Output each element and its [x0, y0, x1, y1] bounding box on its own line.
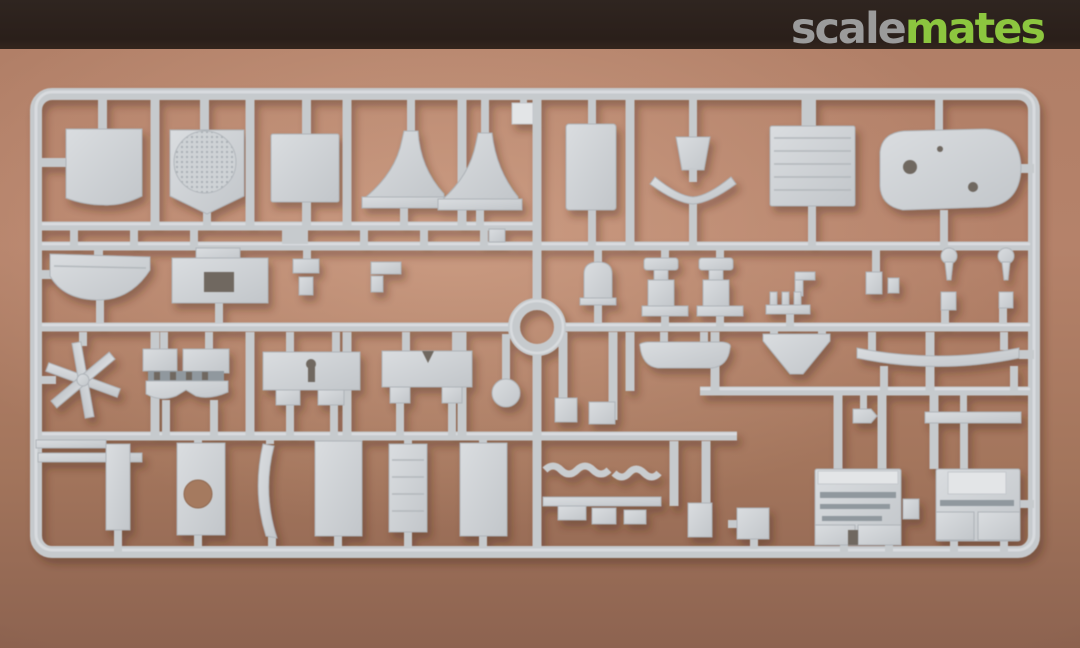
part-louvered-panel	[389, 444, 427, 532]
sprue	[36, 92, 1034, 552]
part-plate-with-hole	[177, 443, 225, 535]
part-tall-panel	[566, 124, 616, 210]
part-winch-pedestal-2	[697, 258, 743, 316]
photo-stage: scalemates	[0, 0, 1080, 648]
part-curved-panel	[66, 129, 142, 205]
part-hatched-grille	[770, 126, 855, 206]
logo-scale-text: scale	[791, 4, 905, 54]
part-small-tag	[512, 103, 533, 124]
part-plank	[106, 444, 130, 530]
part-large-panel-2	[460, 443, 507, 536]
part-funnel-stack-left	[362, 131, 448, 208]
part-curved-blade	[857, 348, 1019, 367]
part-round-pin-1	[941, 248, 957, 280]
part-deck-house	[172, 248, 268, 303]
part-funnel-stack-right	[438, 133, 522, 210]
sprue-center-ring	[511, 301, 563, 353]
part-boat-hull-half	[880, 129, 1021, 210]
part-large-panel-1	[315, 441, 362, 536]
part-curved-rib	[258, 444, 277, 538]
part-round-disc	[492, 379, 520, 407]
part-square-panel	[271, 134, 339, 202]
part-superstructure-1	[815, 469, 901, 545]
part-winch-pedestal-1	[642, 258, 688, 316]
part-small-fittings	[866, 272, 1013, 310]
part-small-funnel-bracket	[650, 137, 736, 204]
part-round-pin-2	[998, 248, 1014, 280]
part-mesh-hatch-plate	[170, 130, 244, 214]
part-small-blocks-center	[555, 398, 615, 424]
part-notched-bulkhead	[382, 351, 472, 403]
scalemates-watermark: scalemates	[791, 8, 1044, 51]
sprue-photo	[0, 0, 1080, 648]
part-bridge-wing	[143, 349, 229, 399]
part-boat-strip	[640, 342, 731, 368]
part-superstructure-2	[936, 469, 1020, 541]
part-chain-strips	[543, 466, 661, 524]
logo-mates-text: mates	[905, 4, 1044, 54]
part-curved-tub	[50, 254, 150, 300]
part-cylinder	[580, 262, 616, 305]
part-small-brackets	[293, 229, 505, 295]
part-yoke-bracket	[763, 334, 830, 374]
part-propeller-star	[46, 342, 120, 418]
